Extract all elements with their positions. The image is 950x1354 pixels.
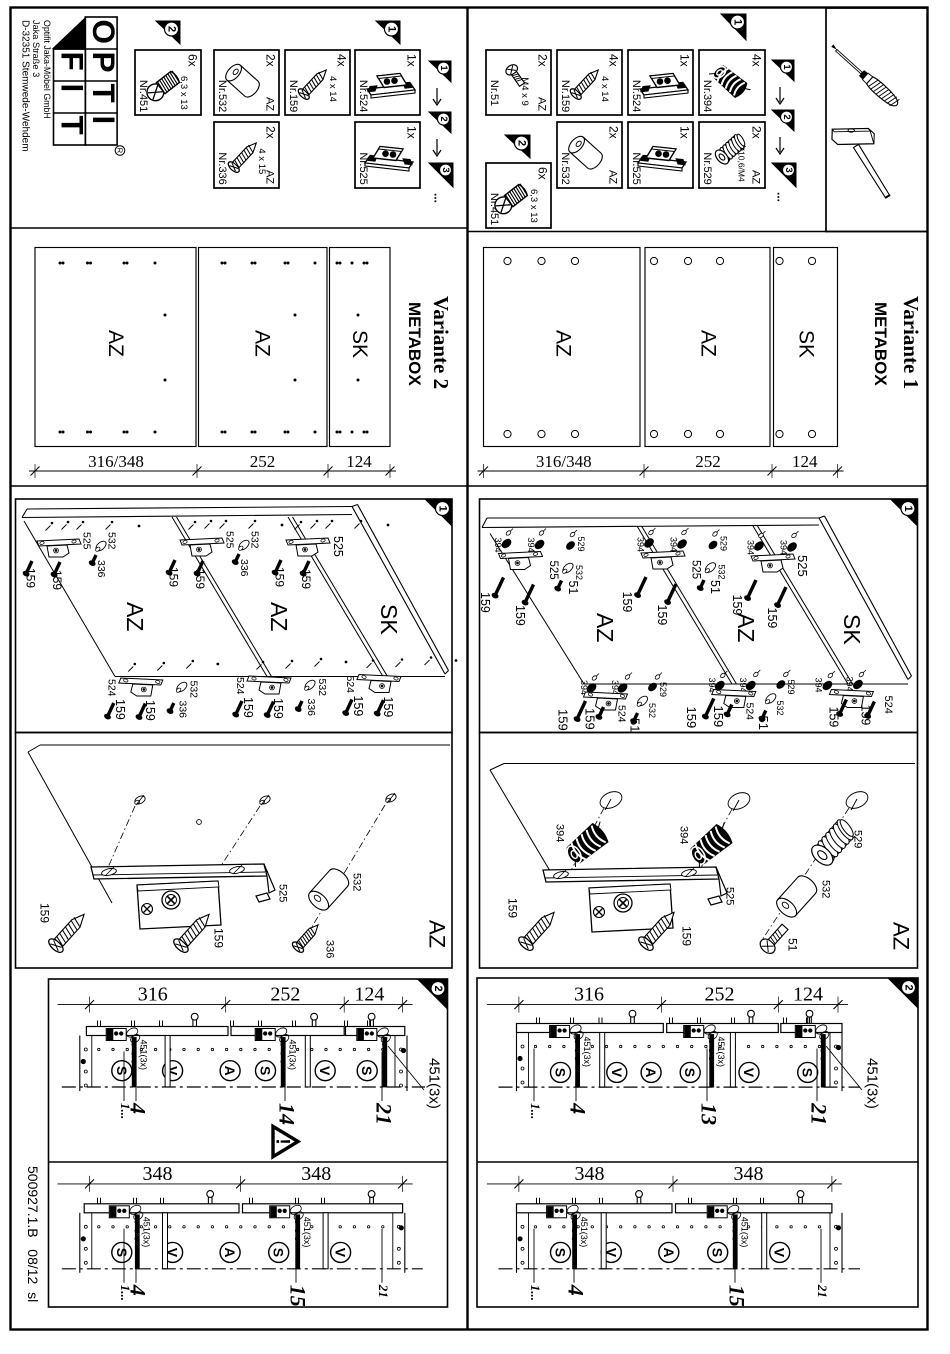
svg-text:4: 4: [125, 1102, 150, 1114]
svg-text:394: 394: [668, 537, 678, 552]
svg-text:532: 532: [820, 880, 832, 898]
svg-text:AZ: AZ: [733, 613, 759, 642]
svg-text:124: 124: [793, 984, 823, 1006]
svg-text:159: 159: [655, 605, 669, 626]
svg-text:2: 2: [166, 26, 178, 32]
svg-text:Nr.51: Nr.51: [488, 80, 500, 106]
svg-text:AZ: AZ: [266, 602, 292, 631]
svg-text:15: 15: [285, 1285, 310, 1307]
svg-text:1x: 1x: [677, 126, 691, 139]
svg-text:316/348: 316/348: [536, 452, 592, 471]
svg-text:21: 21: [815, 1284, 830, 1298]
svg-text:Nr.336: Nr.336: [216, 152, 228, 184]
svg-text:Variante 2: Variante 2: [429, 296, 453, 389]
svg-text:525: 525: [795, 555, 810, 577]
svg-text:1: 1: [438, 65, 449, 71]
svg-text:524: 524: [234, 677, 246, 695]
svg-text:Nr.524: Nr.524: [357, 80, 369, 112]
svg-text:S: S: [553, 1248, 569, 1257]
svg-text:Nr.525: Nr.525: [630, 152, 642, 184]
svg-text:14: 14: [274, 1103, 299, 1125]
svg-text:532: 532: [351, 873, 363, 891]
svg-text:15: 15: [724, 1285, 749, 1307]
svg-text:1x: 1x: [677, 54, 691, 67]
svg-text:524: 524: [882, 696, 894, 714]
svg-text:451(3x): 451(3x): [579, 1217, 589, 1248]
svg-text:V: V: [772, 1248, 788, 1258]
svg-text:51: 51: [785, 938, 799, 952]
svg-text:...: ...: [431, 193, 445, 203]
svg-text:S: S: [258, 1066, 274, 1075]
svg-text:4: 4: [565, 1102, 590, 1114]
svg-text:I: I: [86, 116, 122, 125]
svg-text:394: 394: [493, 538, 503, 553]
svg-text:525: 525: [547, 561, 559, 580]
svg-text:S: S: [359, 1066, 375, 1075]
svg-text:159: 159: [166, 567, 180, 587]
svg-text:6,3 x 13: 6,3 x 13: [528, 189, 539, 223]
svg-text:159: 159: [679, 926, 693, 946]
svg-text:Jaka Straße 3: Jaka Straße 3: [31, 20, 41, 77]
svg-text:S: S: [800, 1068, 816, 1077]
svg-text:21: 21: [371, 1102, 396, 1125]
svg-text:4: 4: [125, 1284, 150, 1296]
svg-text:348: 348: [734, 1163, 764, 1185]
svg-text:Nr.525: Nr.525: [357, 152, 369, 184]
svg-text:159: 159: [241, 697, 255, 718]
svg-text:METABOX: METABOX: [405, 302, 424, 386]
svg-text:1: 1: [781, 64, 792, 70]
svg-text:529: 529: [658, 682, 668, 697]
svg-text:METABOX: METABOX: [871, 302, 890, 386]
svg-text:159: 159: [113, 699, 127, 720]
svg-text:525: 525: [223, 531, 235, 549]
svg-text:4x: 4x: [749, 54, 763, 67]
svg-text:AZ: AZ: [888, 922, 913, 950]
svg-text:159: 159: [271, 698, 285, 719]
svg-text:Nr.532: Nr.532: [216, 80, 228, 112]
svg-text:I: I: [55, 84, 91, 93]
svg-text:532: 532: [188, 681, 200, 699]
svg-text:AZ: AZ: [536, 97, 548, 111]
svg-text:348: 348: [301, 1163, 331, 1185]
svg-text:532: 532: [574, 565, 584, 580]
svg-text:159: 159: [730, 595, 744, 616]
svg-text:AZ: AZ: [264, 97, 276, 111]
svg-text:2x: 2x: [263, 126, 277, 139]
svg-text:532: 532: [316, 679, 328, 697]
svg-text:O: O: [86, 20, 122, 45]
svg-text:348: 348: [575, 1163, 605, 1185]
svg-text:394: 394: [778, 540, 788, 555]
svg-text:252: 252: [695, 452, 721, 471]
svg-text:1: 1: [902, 505, 914, 511]
svg-text:159: 159: [381, 697, 395, 718]
svg-text:V: V: [333, 1248, 349, 1258]
svg-text:159: 159: [37, 903, 51, 923]
svg-text:524: 524: [106, 679, 118, 697]
svg-text:S: S: [114, 1248, 130, 1257]
svg-text:336: 336: [238, 559, 250, 577]
svg-text:252: 252: [705, 984, 735, 1006]
svg-text:252: 252: [270, 984, 300, 1006]
svg-text:1x: 1x: [404, 126, 418, 139]
svg-text:159: 159: [193, 569, 207, 589]
svg-text:2: 2: [438, 116, 449, 121]
svg-text:R: R: [116, 148, 125, 154]
svg-text:2: 2: [781, 114, 792, 119]
svg-text:124: 124: [354, 984, 384, 1006]
svg-text:Optifit Jaka-Möbel GmbH: Optifit Jaka-Möbel GmbH: [42, 20, 52, 119]
svg-text:S: S: [710, 1248, 726, 1257]
svg-text:2: 2: [903, 984, 915, 990]
svg-text:159: 159: [620, 592, 634, 613]
svg-text:!: !: [272, 1138, 293, 1144]
svg-text:159: 159: [478, 592, 492, 613]
svg-text:A: A: [643, 1067, 659, 1077]
svg-text:336: 336: [305, 699, 317, 717]
svg-text:159: 159: [711, 706, 726, 728]
svg-text:AZ: AZ: [697, 330, 720, 357]
svg-text:AZ: AZ: [104, 330, 127, 357]
svg-text:Variante 1: Variante 1: [899, 296, 923, 389]
svg-text:124: 124: [346, 452, 372, 471]
svg-text:S: S: [682, 1068, 698, 1077]
svg-text:A: A: [222, 1066, 238, 1076]
svg-text:348: 348: [143, 1163, 173, 1185]
svg-text:21: 21: [376, 1284, 391, 1298]
svg-text:524: 524: [615, 705, 627, 723]
svg-text:532: 532: [248, 531, 260, 549]
svg-text:252: 252: [250, 452, 276, 471]
svg-text:F: F: [55, 52, 91, 71]
svg-text:Nr.159: Nr.159: [287, 80, 299, 112]
svg-text:316/348: 316/348: [88, 452, 144, 471]
svg-text:SK: SK: [795, 330, 818, 358]
svg-text:336: 336: [177, 701, 189, 719]
svg-text:T: T: [55, 116, 91, 135]
svg-text:525: 525: [690, 560, 702, 579]
svg-text:S: S: [271, 1248, 287, 1257]
svg-text:394: 394: [635, 537, 645, 552]
svg-text:S: S: [114, 1066, 130, 1075]
svg-text:D-32351 Stemwede-Wehdem: D-32351 Stemwede-Wehdem: [20, 20, 31, 152]
svg-text:1: 1: [437, 505, 449, 511]
svg-text:13: 13: [696, 1103, 721, 1125]
svg-text:AZ: AZ: [607, 170, 619, 184]
svg-text:316: 316: [574, 984, 604, 1006]
svg-text:159: 159: [23, 568, 37, 588]
svg-text:AZ: AZ: [251, 330, 274, 357]
svg-text:336: 336: [95, 560, 107, 578]
svg-text:V: V: [317, 1066, 333, 1076]
svg-text:1: 1: [732, 19, 744, 25]
svg-text:SK: SK: [839, 614, 865, 645]
svg-text:394: 394: [554, 824, 566, 842]
svg-text:532: 532: [647, 703, 657, 718]
svg-text:51: 51: [708, 580, 722, 594]
svg-text:V: V: [741, 1068, 757, 1078]
svg-text:394: 394: [745, 540, 755, 555]
svg-text:124: 124: [792, 452, 818, 471]
svg-text:51: 51: [756, 716, 771, 730]
svg-text:T: T: [86, 84, 122, 103]
svg-text:159: 159: [765, 608, 779, 629]
svg-text:4 x 14: 4 x 14: [327, 76, 338, 102]
svg-text:S: S: [553, 1068, 569, 1077]
svg-text:4 x 14: 4 x 14: [599, 76, 610, 102]
svg-text:4x: 4x: [606, 54, 620, 67]
svg-text:SK: SK: [376, 604, 402, 635]
svg-text:51: 51: [566, 581, 580, 595]
svg-text:4x: 4x: [334, 54, 348, 67]
svg-text:394: 394: [845, 677, 855, 692]
svg-text:451(3x): 451(3x): [740, 1217, 750, 1248]
svg-text:159: 159: [50, 570, 64, 590]
svg-text:525: 525: [331, 536, 345, 557]
svg-text:Nr.524: Nr.524: [630, 80, 642, 112]
svg-text:451(3x): 451(3x): [139, 1040, 149, 1071]
svg-text:1x: 1x: [404, 54, 418, 67]
svg-text:451(3x): 451(3x): [716, 1037, 726, 1068]
svg-text:P: P: [86, 52, 122, 73]
svg-text:451(3x): 451(3x): [582, 1037, 592, 1068]
svg-text:532: 532: [105, 532, 117, 550]
svg-text:159: 159: [299, 569, 313, 589]
svg-text:524: 524: [344, 676, 356, 694]
svg-text:500927.1.B 08/12 sl: 500927.1.B 08/12 sl: [25, 1166, 41, 1302]
svg-text:1: 1: [386, 26, 398, 32]
svg-text:2x: 2x: [535, 54, 549, 67]
svg-text:451(3x): 451(3x): [426, 1058, 443, 1109]
svg-text:AZ: AZ: [424, 920, 449, 948]
svg-text:525: 525: [277, 884, 289, 902]
svg-text:316: 316: [138, 984, 168, 1006]
svg-text:...: ...: [774, 192, 788, 202]
svg-text:AZ: AZ: [264, 170, 276, 184]
svg-text:451(3x): 451(3x): [288, 1040, 298, 1071]
svg-text:3: 3: [783, 167, 794, 172]
svg-text:529: 529: [576, 537, 586, 552]
svg-text:2: 2: [432, 985, 444, 991]
svg-text:451(3x): 451(3x): [302, 1217, 312, 1248]
svg-text:A: A: [222, 1247, 238, 1257]
svg-text:451(3x): 451(3x): [142, 1217, 152, 1248]
svg-text:3: 3: [440, 167, 451, 172]
svg-text:394: 394: [526, 538, 536, 553]
svg-text:524: 524: [744, 703, 756, 721]
svg-text:529: 529: [718, 536, 728, 551]
svg-text:1...: 1...: [528, 1103, 543, 1119]
svg-text:2x: 2x: [606, 126, 620, 139]
svg-text:525: 525: [80, 532, 92, 550]
svg-text:525: 525: [724, 887, 736, 905]
svg-text:451(3x): 451(3x): [864, 1058, 881, 1109]
svg-text:159: 159: [513, 605, 527, 626]
svg-text:51: 51: [628, 718, 643, 732]
svg-text:532: 532: [775, 701, 785, 716]
svg-text:Nr.159: Nr.159: [559, 80, 571, 112]
svg-text:394: 394: [814, 678, 824, 693]
svg-text:2x: 2x: [749, 126, 763, 139]
svg-text:1...: 1...: [528, 1285, 543, 1301]
svg-text:159: 159: [827, 707, 841, 728]
svg-text:AZ: AZ: [552, 330, 575, 357]
svg-text:A: A: [661, 1247, 677, 1257]
svg-text:6x: 6x: [185, 54, 199, 67]
svg-text:159: 159: [859, 705, 873, 726]
svg-text:SK: SK: [348, 330, 371, 358]
svg-text:529: 529: [852, 830, 864, 848]
svg-text:529: 529: [786, 680, 796, 695]
svg-text:336: 336: [324, 940, 336, 958]
svg-text:159: 159: [211, 928, 225, 948]
svg-text:532: 532: [716, 565, 726, 580]
svg-text:2: 2: [516, 140, 528, 146]
svg-text:159: 159: [684, 707, 699, 729]
svg-text:159: 159: [556, 709, 571, 731]
svg-text:159: 159: [143, 700, 157, 721]
svg-text:6x: 6x: [535, 167, 549, 180]
svg-text:4: 4: [563, 1284, 588, 1296]
svg-text:AZ: AZ: [750, 170, 762, 184]
svg-text:159: 159: [272, 567, 286, 587]
svg-text:21: 21: [806, 1102, 831, 1125]
svg-text:159: 159: [583, 708, 598, 730]
svg-text:Nr.532: Nr.532: [559, 152, 571, 184]
svg-text:2x: 2x: [263, 54, 277, 67]
svg-text:159: 159: [351, 696, 365, 717]
svg-text:V: V: [609, 1068, 625, 1078]
svg-text:Nr.529: Nr.529: [701, 152, 713, 184]
svg-text:AZ: AZ: [592, 613, 618, 642]
svg-text:AZ: AZ: [122, 602, 148, 631]
svg-text:159: 159: [505, 898, 519, 918]
svg-text:394: 394: [678, 826, 690, 844]
svg-text:Nr.394: Nr.394: [701, 80, 713, 112]
